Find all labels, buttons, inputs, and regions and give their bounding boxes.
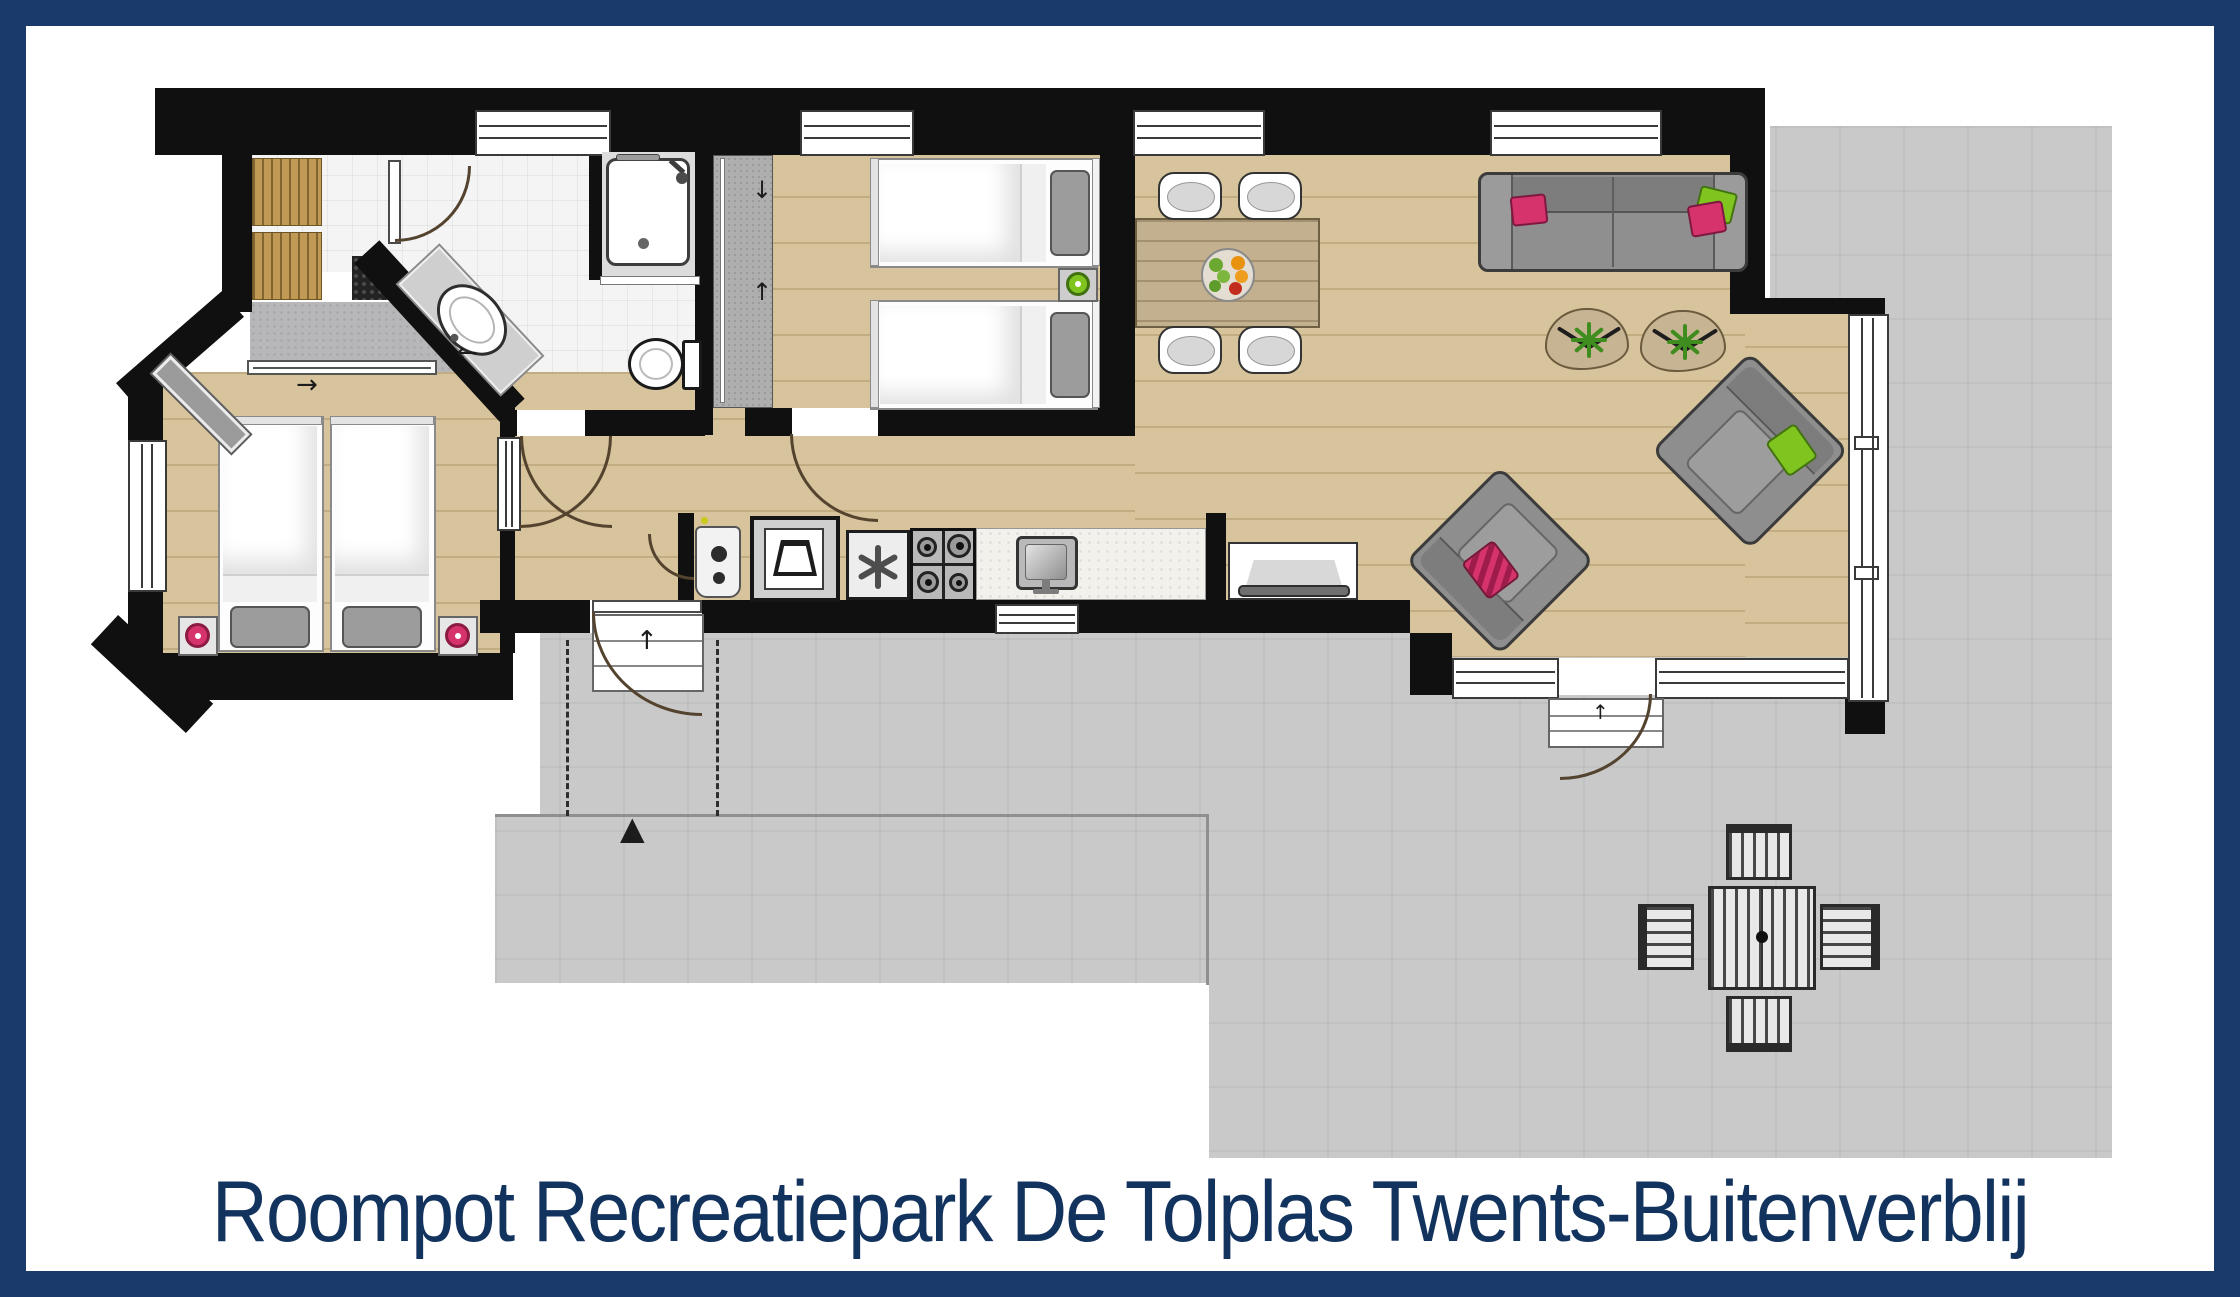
wardrobe-arrow-up: ↑ bbox=[752, 280, 772, 304]
bed-headboard bbox=[1092, 158, 1100, 266]
toilet-cistern bbox=[682, 340, 702, 390]
window-bedroom1-left bbox=[128, 440, 167, 592]
shower-glass-edge bbox=[600, 276, 700, 285]
sauna-bench-upper bbox=[252, 158, 322, 226]
dining-chair bbox=[1158, 326, 1222, 374]
bed-sheet-fold bbox=[1020, 306, 1046, 404]
kitchen-sink-basin bbox=[1025, 544, 1067, 580]
sliding-door-track bbox=[253, 367, 431, 369]
window-top-2 bbox=[800, 110, 914, 156]
hob-burner-dot bbox=[924, 544, 931, 551]
dishwasher bbox=[750, 516, 840, 602]
bed-pillow bbox=[1050, 312, 1090, 398]
fruit-orange bbox=[1235, 270, 1248, 283]
gas-hob bbox=[910, 528, 976, 602]
bed-pillow bbox=[1050, 170, 1090, 256]
outdoor-chair-east bbox=[1820, 904, 1880, 970]
bed-single-left bbox=[218, 416, 324, 652]
lamp-center-dot bbox=[455, 633, 461, 639]
window-top-1 bbox=[475, 110, 611, 156]
terrace-edge-line-horizontal bbox=[495, 814, 1209, 817]
lamp-center-dot bbox=[195, 633, 201, 639]
dining-table bbox=[1135, 218, 1320, 328]
bed-footboard bbox=[330, 416, 434, 425]
wall-bedroom2-dining bbox=[1100, 150, 1135, 436]
window-mullion bbox=[1854, 566, 1879, 580]
bed-duvet bbox=[223, 426, 317, 574]
hob-burner-dot bbox=[956, 580, 962, 586]
dining-chair-seat bbox=[1167, 336, 1215, 366]
terrace-door-opening bbox=[1555, 658, 1655, 695]
toilet-bowl-inner bbox=[639, 348, 673, 380]
window-top-3 bbox=[1133, 110, 1265, 156]
sofa-pillow-pink-left bbox=[1510, 193, 1549, 227]
window-kitchen bbox=[995, 604, 1079, 634]
bed-duvet bbox=[880, 306, 1020, 404]
bed-duvet bbox=[880, 164, 1020, 262]
bedroom2-door-opening bbox=[792, 408, 878, 436]
boiler-knob-small bbox=[713, 572, 725, 584]
bed2-single-bottom bbox=[870, 300, 1098, 410]
tv-sideboard bbox=[1228, 542, 1358, 600]
wall-living-bottom-stub bbox=[1410, 633, 1452, 695]
lamp-center-dot bbox=[1075, 281, 1081, 287]
toilet-bowl bbox=[628, 338, 684, 390]
plant-icon bbox=[1667, 340, 1703, 344]
sofa bbox=[1478, 172, 1748, 272]
outdoor-table bbox=[1708, 886, 1816, 990]
sofa-pillow-pink-right bbox=[1686, 200, 1727, 238]
boiler-appliance bbox=[695, 526, 741, 598]
bed-sheet-fold bbox=[223, 574, 317, 602]
bed-footboard bbox=[870, 158, 879, 266]
hall-arrow-left: ← bbox=[456, 340, 478, 366]
sliding-door-bedroom1 bbox=[247, 360, 437, 375]
outdoor-chair-west bbox=[1638, 904, 1694, 970]
sofa-armrest-left bbox=[1481, 175, 1513, 269]
page-title: Roompot Recreatiepark De Tolplas Twents-… bbox=[30, 1163, 2210, 1268]
wall-tv bbox=[1210, 600, 1410, 633]
glass-panel-bedroom1 bbox=[497, 437, 521, 531]
wall-bathroom-bedroom2 bbox=[695, 150, 713, 435]
terrace-edge-line-vertical bbox=[1206, 814, 1209, 985]
boiler-tap-dot bbox=[701, 517, 708, 524]
shower-enclosure bbox=[602, 152, 695, 276]
window-living-bottom-2 bbox=[1655, 658, 1849, 699]
shower-head-icon bbox=[676, 172, 688, 184]
hall-arrow-right: → bbox=[296, 372, 318, 398]
lamp-pink-right bbox=[445, 623, 470, 648]
window-mullion bbox=[1854, 436, 1879, 450]
bed-headboard bbox=[1092, 300, 1100, 408]
plant-icon bbox=[1571, 338, 1607, 342]
fruit-green bbox=[1209, 280, 1221, 292]
kitchen-sink bbox=[1016, 536, 1078, 590]
bed-pillow bbox=[230, 606, 310, 648]
hob-burner-dot bbox=[925, 579, 932, 586]
tv-base-bar bbox=[1238, 585, 1350, 597]
shower-drain bbox=[638, 238, 649, 249]
page-title-text: Roompot Recreatiepark De Tolplas Twents-… bbox=[212, 1163, 2028, 1262]
dining-chair bbox=[1158, 172, 1222, 220]
shower-handle bbox=[616, 154, 660, 161]
window-top-4 bbox=[1490, 110, 1662, 156]
wall-bathroom-left bbox=[222, 88, 252, 312]
outdoor-chair-south bbox=[1726, 996, 1792, 1052]
floor-plan: ▲ bbox=[0, 0, 2240, 1297]
lamp-pink-left bbox=[185, 623, 210, 648]
freezer bbox=[846, 530, 910, 600]
fruit-orange bbox=[1231, 256, 1245, 270]
fruit-red bbox=[1229, 282, 1242, 295]
bed-sheet-fold bbox=[335, 574, 429, 602]
wardrobe-sliding-track bbox=[720, 158, 725, 403]
bed-footboard bbox=[870, 300, 879, 408]
window-living-bottom-1 bbox=[1452, 658, 1559, 699]
north-entrance-marker: ▲ bbox=[620, 812, 645, 844]
hob-grid-line bbox=[913, 563, 973, 566]
kitchen-counter bbox=[976, 528, 1206, 600]
wall-shower-left bbox=[589, 150, 602, 280]
bed2-single-top bbox=[870, 158, 1098, 268]
wall-kitchen-divider-right bbox=[1206, 513, 1226, 633]
bed-pillow bbox=[342, 606, 422, 648]
walkway-dashed-line-left bbox=[566, 640, 569, 816]
bed-single-right bbox=[330, 416, 436, 652]
lamp-green bbox=[1066, 272, 1090, 296]
hob-burner-dot bbox=[956, 542, 964, 550]
dining-chair-seat bbox=[1247, 182, 1295, 212]
boiler-knob-large bbox=[711, 546, 727, 562]
wall-bay-top bbox=[1730, 298, 1885, 314]
dining-chair-seat bbox=[1247, 336, 1295, 366]
dining-chair bbox=[1238, 326, 1302, 374]
wardrobe-arrow-down: ↓ bbox=[752, 178, 772, 202]
window-living-right bbox=[1848, 314, 1889, 702]
tv-screen bbox=[1246, 560, 1342, 586]
kitchen-faucet bbox=[1033, 589, 1059, 594]
fruit-bowl bbox=[1201, 248, 1255, 302]
bed-sheet-fold bbox=[1020, 164, 1046, 262]
bed-duvet bbox=[335, 426, 429, 574]
walkway-dashed-line-right bbox=[716, 640, 719, 816]
sauna-bench-lower bbox=[252, 232, 322, 300]
dining-chair-seat bbox=[1167, 182, 1215, 212]
dining-chair bbox=[1238, 172, 1302, 220]
outdoor-chair-north bbox=[1726, 824, 1792, 880]
outdoor-table-center-dot bbox=[1756, 931, 1768, 943]
sofa-seat-seam bbox=[1612, 177, 1614, 267]
bathroom-door-opening bbox=[517, 410, 585, 436]
